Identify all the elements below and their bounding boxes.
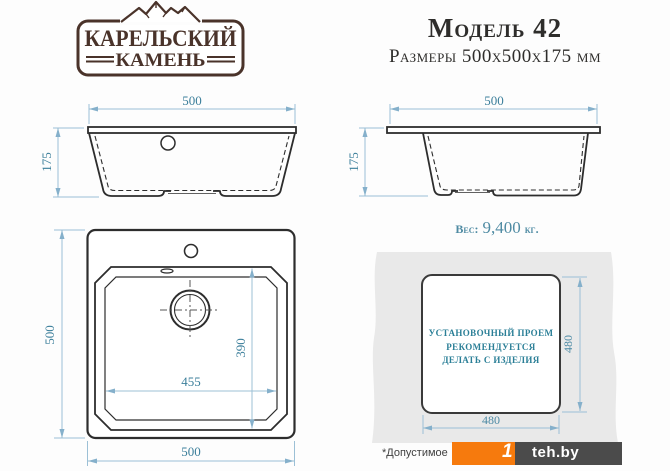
front-height-label: 175 <box>39 152 54 172</box>
weight-unit: кг. <box>525 222 539 237</box>
weight-line: Вес: 9,400 кг. <box>417 218 577 238</box>
cutout-height-label: 480 <box>561 335 575 353</box>
side-section-view: 500 175 <box>345 93 670 220</box>
sink-wall-right <box>213 133 295 196</box>
overflow-hole <box>161 136 175 150</box>
watermark-digit: 1 <box>502 441 513 463</box>
cutout-width-label: 480 <box>482 413 500 427</box>
title-block: Модель 42 Размеры 500х500х175 мм <box>345 12 645 69</box>
front-width-label: 500 <box>182 93 202 108</box>
side-height-label: 175 <box>346 152 361 172</box>
sink-rim <box>387 127 600 133</box>
footnote: *Допустимое <box>382 447 448 459</box>
inner-shell-dashed <box>428 136 584 190</box>
installation-cutout-view: УСТАНОВОЧНЫЙ ПРОЕМ РЕКОМЕНДУЕТСЯ ДЕЛАТЬ … <box>358 245 670 445</box>
front-section-view: 500 175 <box>35 93 335 220</box>
sink-wall-left <box>89 133 171 196</box>
extension-lines <box>53 128 99 197</box>
watermark-site-name: teh.by <box>515 442 622 465</box>
watermark-logo[interactable]: teh.by 1 <box>452 442 622 465</box>
sink-wall-front <box>423 133 458 195</box>
weight-value: 9,400 <box>482 218 520 238</box>
bowl-depth-label: 390 <box>233 338 248 358</box>
plan-left-label: 500 <box>42 325 57 345</box>
cutout-note-line2: РЕКОМЕНДУЕТСЯ <box>446 342 536 352</box>
sink-wall-back <box>487 133 588 196</box>
overflow-slot <box>161 269 173 273</box>
weight-label: Вес: <box>455 222 478 237</box>
size-subtitle: Размеры 500х500х175 мм <box>345 45 645 69</box>
mountains-icon <box>121 2 200 22</box>
cutout-note-line1: УСТАНОВОЧНЫЙ ПРОЕМ <box>429 328 554 338</box>
cutout-note-line3: ДЕЛАТЬ С ИЗДЕЛИЯ <box>442 355 539 365</box>
sink-rim <box>88 127 296 133</box>
drawing-sheet: КАРЕЛЬСКИЙ КАМЕНЬ Модель 42 Размеры 500х… <box>0 0 670 471</box>
plan-view: 500 500 390 455 <box>35 220 335 471</box>
brand-logo: КАРЕЛЬСКИЙ КАМЕНЬ <box>55 0 265 92</box>
bowl-width-label: 455 <box>181 374 201 389</box>
logo-line2: КАМЕНЬ <box>116 50 206 71</box>
tap-hole <box>185 245 198 258</box>
model-title: Модель 42 <box>345 12 645 44</box>
plan-bottom-label: 500 <box>181 444 201 459</box>
inner-shell-dashed <box>95 136 289 191</box>
side-width-label: 500 <box>484 93 504 108</box>
extension-lines <box>54 230 85 438</box>
extension-lines <box>359 128 428 196</box>
logo-line1: КАРЕЛЬСКИЙ <box>85 26 237 51</box>
